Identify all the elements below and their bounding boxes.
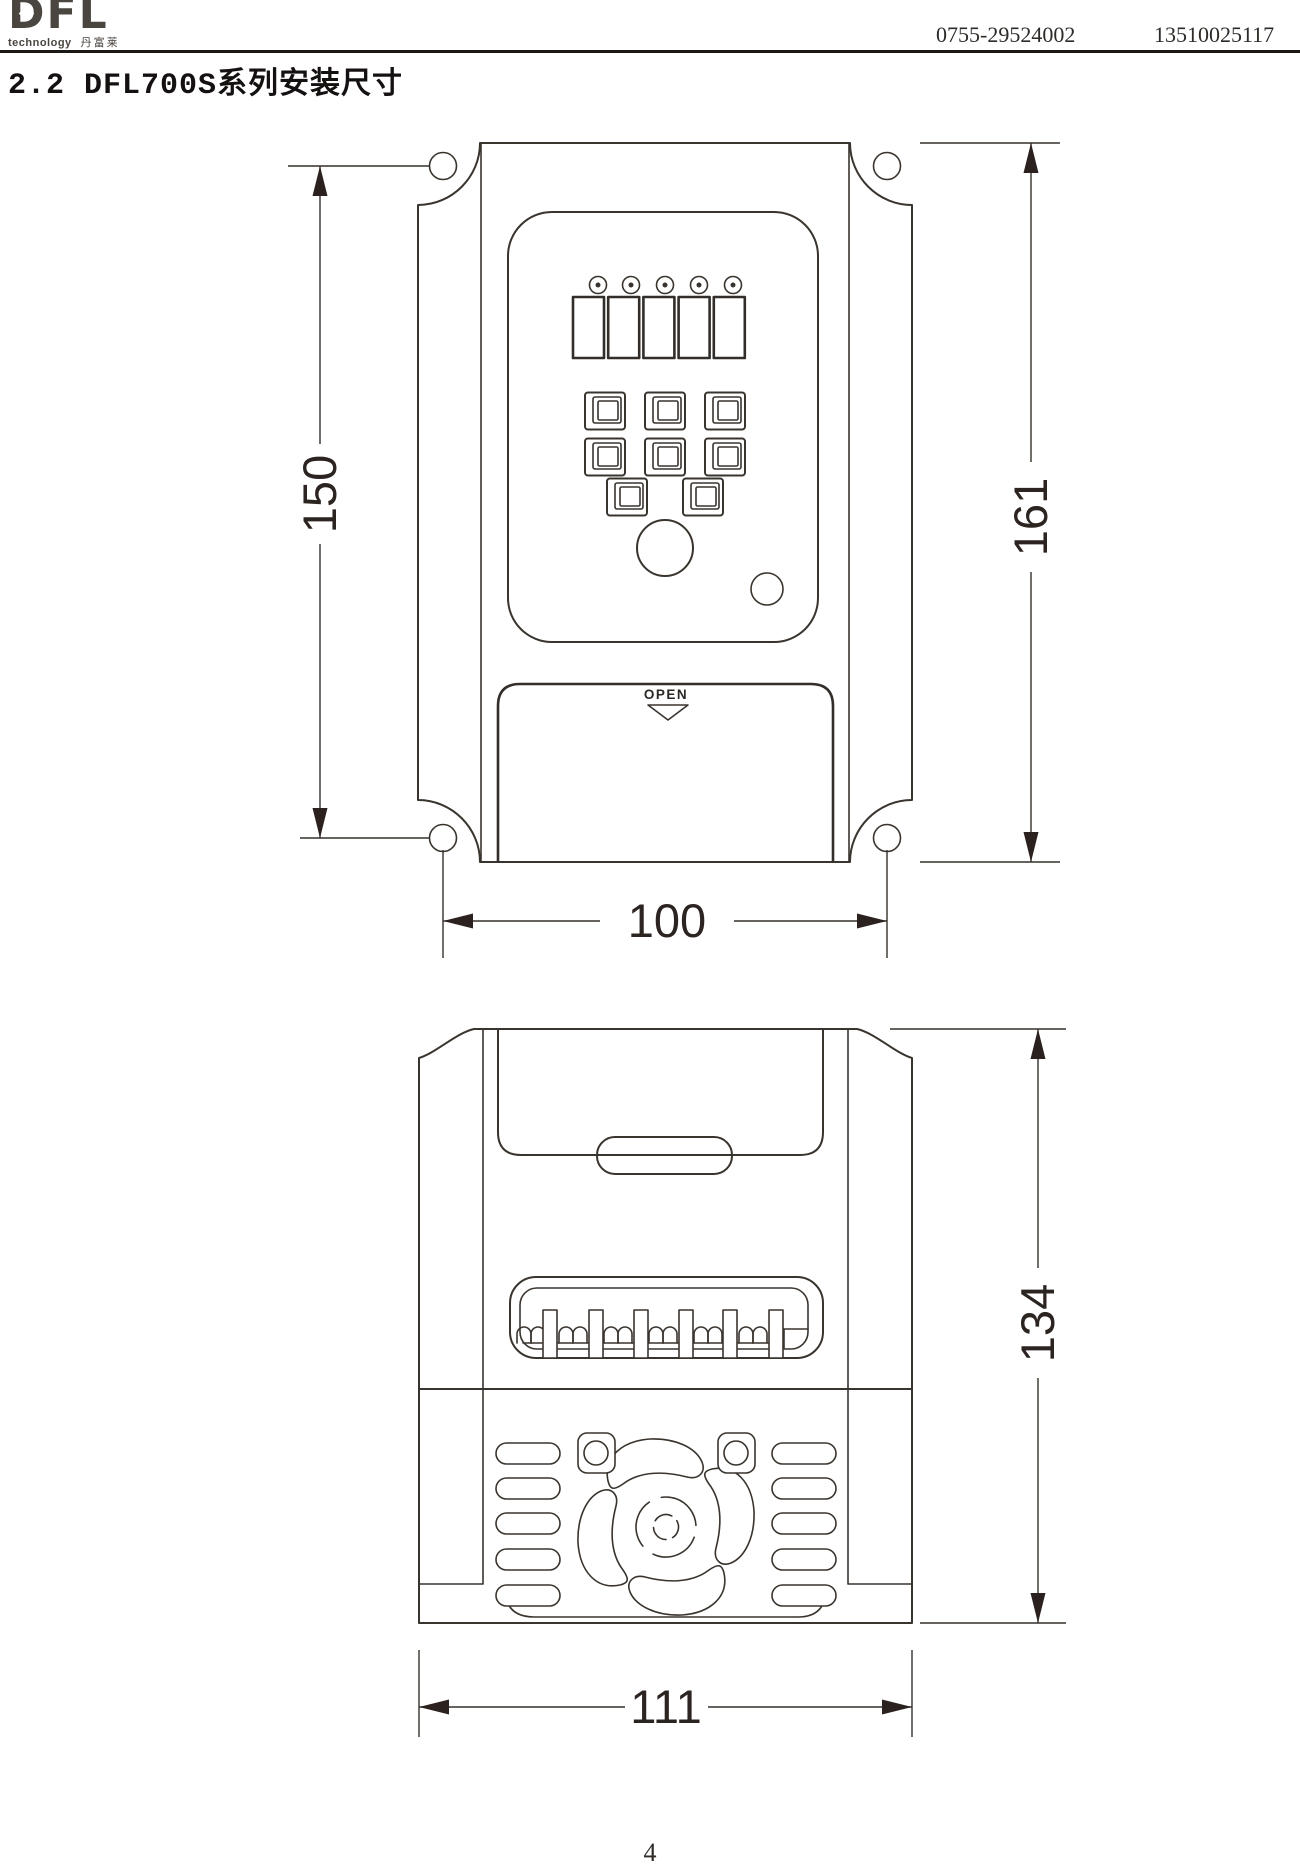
vent-slots bbox=[496, 1443, 836, 1606]
dim-overall-height: 161 bbox=[1004, 478, 1057, 556]
manual-page: DFL technology丹富莱 0755-29524002 13510025… bbox=[0, 0, 1300, 1875]
open-arrow-icon bbox=[648, 705, 688, 720]
dimension-111: 111 bbox=[419, 1650, 912, 1737]
dim-mounting-height: 150 bbox=[293, 455, 346, 533]
cooling-fan-section bbox=[496, 1433, 836, 1617]
digit-display bbox=[573, 297, 745, 358]
knob bbox=[637, 520, 693, 576]
front-cover: OPEN bbox=[498, 684, 833, 862]
front-housing-outline bbox=[418, 143, 912, 862]
fan-screw-pads bbox=[578, 1433, 755, 1473]
mounting-holes bbox=[430, 153, 901, 852]
dimension-100: 100 bbox=[443, 850, 887, 958]
dim-mounting-width: 100 bbox=[628, 894, 706, 947]
front-view: OPEN bbox=[418, 143, 912, 862]
indicator-circle bbox=[751, 573, 783, 605]
dimension-134: 134 bbox=[890, 1029, 1066, 1623]
open-label: OPEN bbox=[644, 687, 688, 702]
dimension-161: 161 bbox=[920, 143, 1060, 862]
dim-side-height: 134 bbox=[1011, 1284, 1064, 1362]
led-indicators bbox=[590, 277, 742, 294]
side-view bbox=[419, 1029, 912, 1623]
dimension-150: 150 bbox=[288, 166, 430, 838]
side-housing-outline bbox=[419, 1029, 912, 1623]
page-number: 4 bbox=[0, 1838, 1300, 1868]
keypad-panel bbox=[508, 212, 818, 642]
dim-side-width: 111 bbox=[630, 1680, 701, 1733]
terminal-block bbox=[510, 1277, 823, 1358]
keypad-keys bbox=[585, 393, 745, 516]
technical-drawing: OPEN 150 161 100 bbox=[0, 0, 1300, 1875]
